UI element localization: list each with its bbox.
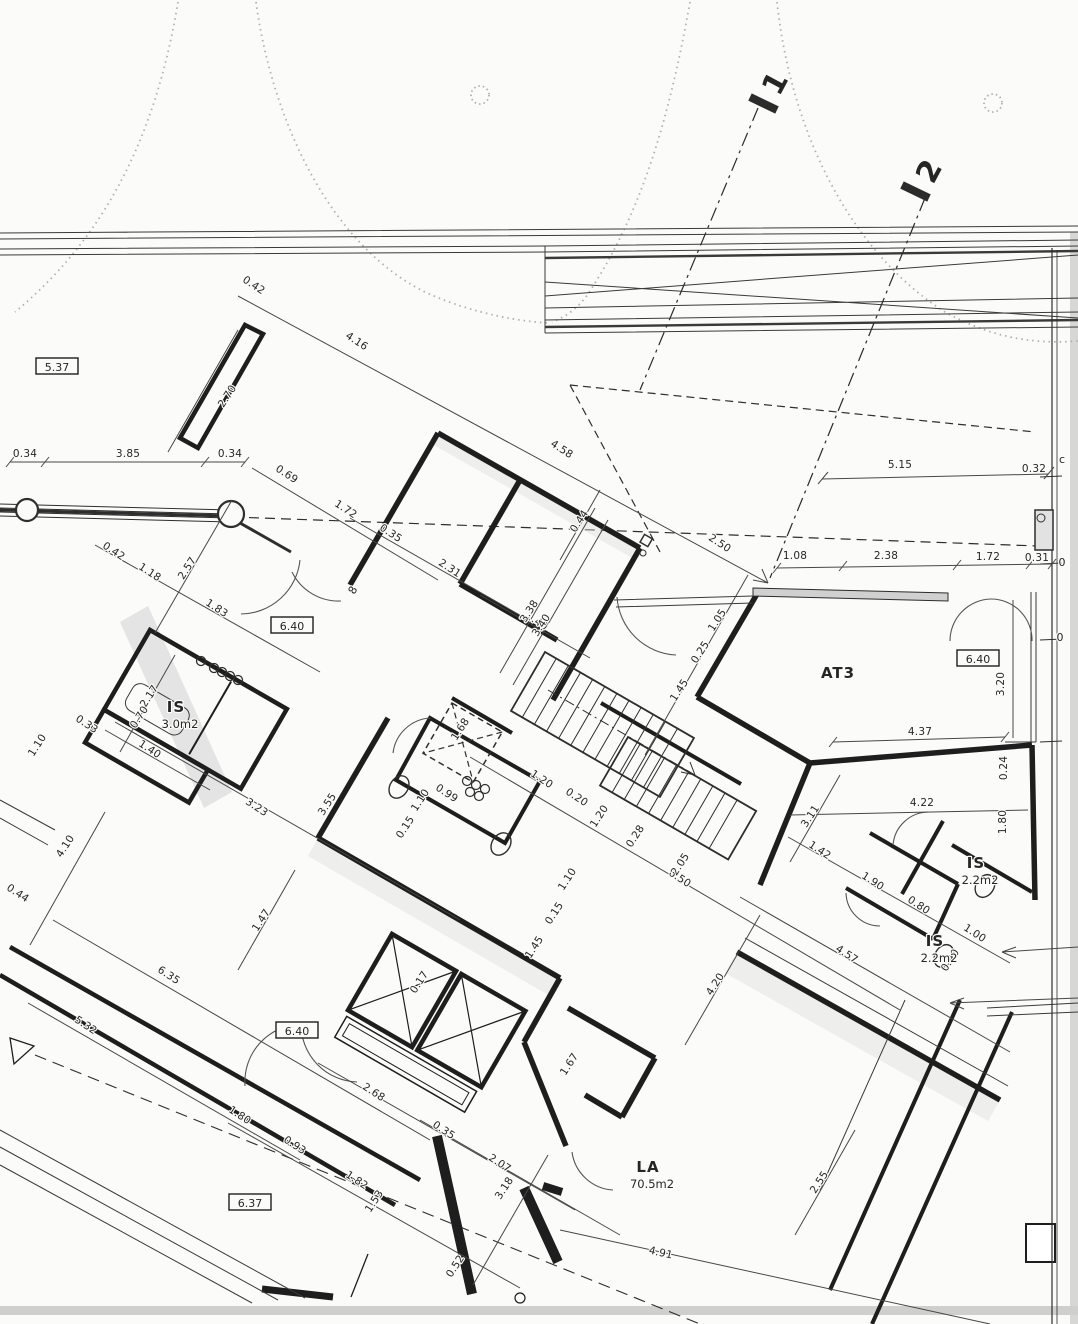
- section-tick-2: [902, 185, 929, 198]
- dimension-label: 1.45: [523, 934, 546, 961]
- toilet-icon: [385, 772, 413, 802]
- dimension-label: 4.37: [908, 726, 932, 738]
- dimension-label: 1.90: [859, 870, 886, 893]
- annotation-mark: c: [1059, 453, 1065, 466]
- dimension-label: 0.20: [563, 786, 590, 809]
- room-area-label: 2.2m2: [921, 951, 958, 965]
- dimension-label: 2.70: [216, 383, 239, 410]
- dimension-label: 5.32: [72, 1014, 99, 1037]
- dimension-label: 0.24: [998, 756, 1010, 780]
- dimension-label: 0.80: [905, 894, 932, 917]
- dimension-label: 1.10: [26, 732, 49, 759]
- dimension-label: 3.85: [116, 448, 140, 460]
- dimension-label: 1.80: [997, 810, 1009, 834]
- dimension-label: 0.31: [1025, 552, 1049, 564]
- boundary-dashed-lines: [35, 385, 1038, 1324]
- dimension-label: 1.05: [706, 607, 729, 634]
- dimension-label: 1.08: [783, 550, 807, 562]
- dimension-label: 1.00: [961, 922, 988, 945]
- section-tick-1: [750, 97, 777, 110]
- dimension-label: 3.18: [493, 1175, 516, 1202]
- dimension-label: 5.15: [888, 459, 912, 471]
- dimension-label: 1.42: [806, 839, 833, 862]
- room-label: AT3: [821, 664, 855, 682]
- dimension-label: 2.57: [176, 555, 199, 582]
- dimension-label: 2.31: [436, 557, 463, 580]
- section-number: 2: [909, 154, 950, 189]
- room-area-label: 2.2m2: [962, 873, 999, 887]
- dimension-label: 1.80: [226, 1104, 253, 1127]
- tree-trunk-icon: [471, 86, 489, 104]
- level-marker-value: 6.40: [280, 620, 305, 633]
- dimension-label: 0.15: [394, 814, 417, 841]
- dimension-label: 0.34: [13, 448, 37, 460]
- fence-railing: [0, 499, 291, 552]
- room-area-label: 70.5m2: [630, 1177, 674, 1191]
- dimension-label: 1.72: [332, 498, 359, 521]
- level-marker-value: 6.37: [238, 1197, 263, 1210]
- dimension-label: 1.72: [976, 551, 1000, 563]
- dimension-label: 3.20: [995, 672, 1007, 696]
- room-label: IS: [926, 932, 944, 950]
- dimension-label: 1.10: [556, 866, 579, 893]
- scanned-floorplan-page: 0.424.162.700.343.850.340.691.724.580.35…: [0, 0, 1078, 1324]
- dimension-label: 0.69: [273, 463, 300, 486]
- annotation-mark: 0: [1059, 556, 1066, 569]
- dimension-label: 4.10: [54, 833, 77, 860]
- dimension-label: 3.23: [243, 796, 270, 819]
- sink-cluster-icon: [463, 777, 490, 801]
- datum-marks: [0, 800, 525, 1303]
- dimension-label: 1.83: [203, 597, 230, 620]
- fence-post-icon: [16, 499, 38, 521]
- section-cut-lines: [640, 97, 929, 578]
- section-number: 1: [755, 66, 796, 101]
- dimension-label: 0.42: [240, 274, 267, 297]
- wall-shading: [120, 433, 1000, 1121]
- hatched-wall: [753, 588, 948, 601]
- dimension-label: 6.35: [155, 964, 182, 987]
- dimension-label: 0.17: [408, 969, 431, 996]
- level-marker-value: 6.40: [285, 1025, 310, 1038]
- road-lines: [0, 226, 1078, 333]
- dimension-label: 4.20: [704, 971, 727, 998]
- dimension-label: 4.16: [343, 330, 370, 353]
- dimension-label: 0.42: [100, 540, 127, 563]
- room-label: LA: [636, 1158, 659, 1176]
- dimension-label: 1.67: [558, 1051, 581, 1078]
- dimension-label: 0.28: [624, 823, 647, 850]
- stair-flight-2: [600, 737, 756, 859]
- dimension-label: 2.38: [874, 550, 898, 562]
- level-marker-value: 5.37: [45, 361, 70, 374]
- dimension-label: 4.58: [548, 438, 575, 461]
- building-walls: [0, 433, 1078, 1324]
- dimension-label: 4.22: [910, 797, 934, 809]
- dimension-label: 0.32: [1022, 463, 1046, 475]
- dimension-label: 4.57: [833, 943, 860, 966]
- annotation-mark: 8: [346, 584, 361, 597]
- dimension-label: 0.33: [73, 713, 100, 736]
- dimension-label: 1.20: [588, 803, 611, 830]
- stair-direction-arrow: [548, 690, 695, 775]
- tree-trunk-icon: [984, 94, 1002, 112]
- fence-post-icon: [218, 501, 244, 527]
- future-shaft-dashed-box: [423, 703, 502, 782]
- dimension-label: 1.20: [528, 768, 555, 791]
- dimension-label: 4.91: [648, 1245, 674, 1262]
- dimension-label: 0.34: [218, 448, 242, 460]
- floor-plan-canvas: 0.424.162.700.343.850.340.691.724.580.35…: [0, 0, 1078, 1324]
- room-label: IS: [167, 698, 185, 716]
- level-marker-value: 6.40: [966, 653, 991, 666]
- room-area-label: 3.0m2: [162, 717, 199, 731]
- detached-wall-segment: [180, 325, 263, 448]
- dimension-label: 0.44: [4, 882, 31, 905]
- dimension-label: 1.47: [250, 907, 273, 934]
- parcel-corner-marker: [640, 534, 652, 556]
- annotation-mark: 0: [1057, 631, 1064, 644]
- dimension-label: 0.15: [543, 900, 566, 927]
- dimension-label: 2.05: [669, 851, 692, 878]
- dimension-lines: [6, 296, 1078, 1324]
- room-label: IS: [967, 854, 985, 872]
- property-grid-line: [1035, 248, 1062, 1324]
- dimension-label: 3.11: [799, 803, 822, 830]
